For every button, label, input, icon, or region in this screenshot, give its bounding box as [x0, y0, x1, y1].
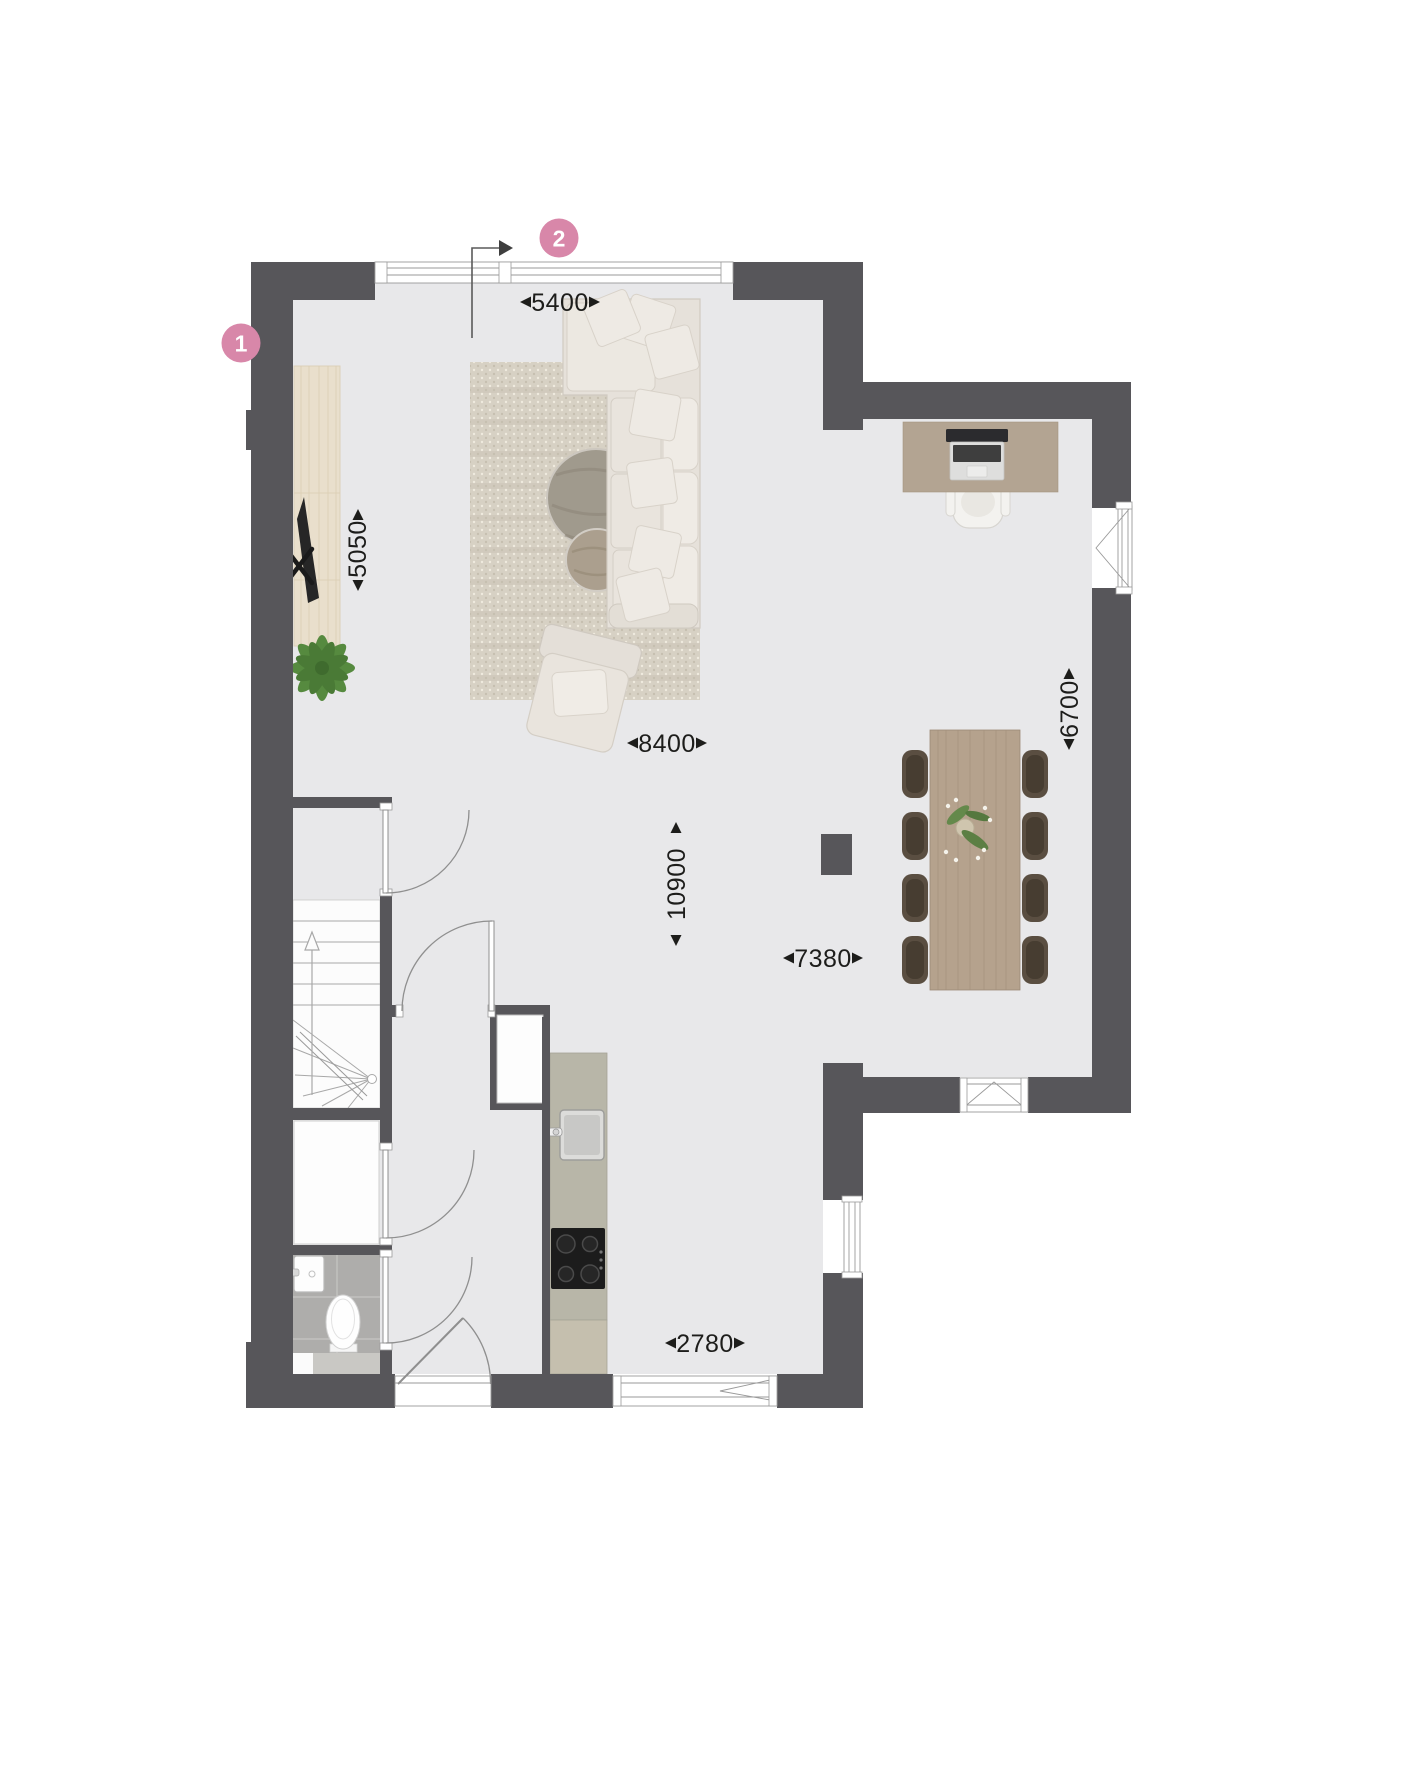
dimension-label: 7380 — [794, 945, 852, 973]
dimension-label: 2780 — [676, 1330, 734, 1358]
window-kitchen-south — [613, 1376, 777, 1406]
storage-floor — [294, 1121, 379, 1244]
floorplan-page: 5400 5050 8400 10900 6700 7380 2780 — [0, 0, 1417, 1772]
window-top — [375, 262, 733, 283]
laptop-screen-icon — [946, 429, 1008, 442]
dimension-kitchen-width: 2780 — [665, 1330, 745, 1358]
door-leaf — [383, 1150, 388, 1238]
kitchen-counter — [548, 1053, 607, 1374]
door-leaf — [383, 1257, 388, 1343]
dimension-dining-depth: 6700 — [1056, 668, 1084, 750]
column — [821, 834, 852, 875]
marker-2-label: 2 — [553, 225, 566, 251]
plant-center — [315, 661, 329, 675]
dimension-top-width: 5400 — [520, 289, 600, 317]
storage-closet — [294, 1121, 379, 1244]
dimension-label: 5400 — [531, 289, 589, 317]
marker-2[interactable]: 2 — [540, 219, 579, 258]
dimension-label: 10900 — [663, 848, 691, 920]
dimension-label: 5050 — [344, 520, 372, 578]
door-leaf — [383, 810, 388, 893]
dimension-label: 6700 — [1056, 680, 1084, 738]
toilet-corner-panel — [293, 1353, 313, 1374]
toilet-room — [290, 1255, 380, 1374]
dimension-living-width: 8400 — [627, 730, 707, 758]
stair-newel — [368, 1075, 377, 1084]
laptop-trackpad-icon — [967, 466, 987, 477]
marker-1[interactable]: 1 — [222, 324, 261, 363]
toilet-mat — [313, 1353, 380, 1374]
faucet-base — [553, 1129, 559, 1135]
desk — [903, 422, 1058, 492]
window-office-right — [1096, 502, 1132, 594]
laptop-keyboard-icon — [953, 445, 1001, 462]
plant — [289, 635, 355, 701]
kitchen-sink-basin — [564, 1115, 600, 1155]
dimension-tv-wall: 5050 — [344, 509, 372, 591]
dimension-label: 8400 — [638, 730, 696, 758]
tv-cabinet — [286, 366, 340, 646]
marker-1-label: 1 — [235, 330, 248, 356]
door-leaf — [489, 921, 494, 1011]
window-kitchen-east — [842, 1196, 862, 1278]
armchair-pillow — [552, 669, 609, 717]
window-dining-bottom — [960, 1078, 1028, 1112]
entrance-arrowhead-icon — [499, 240, 513, 256]
counter-lower-cabinet — [550, 1320, 607, 1374]
toilet-bowl-icon — [326, 1295, 360, 1349]
meter-cupboard — [497, 1015, 543, 1103]
floorplan-drawing: 5400 5050 8400 10900 6700 7380 2780 — [0, 0, 1417, 1772]
dimension-dining-width: 7380 — [783, 945, 863, 973]
stair-area — [293, 900, 380, 1108]
